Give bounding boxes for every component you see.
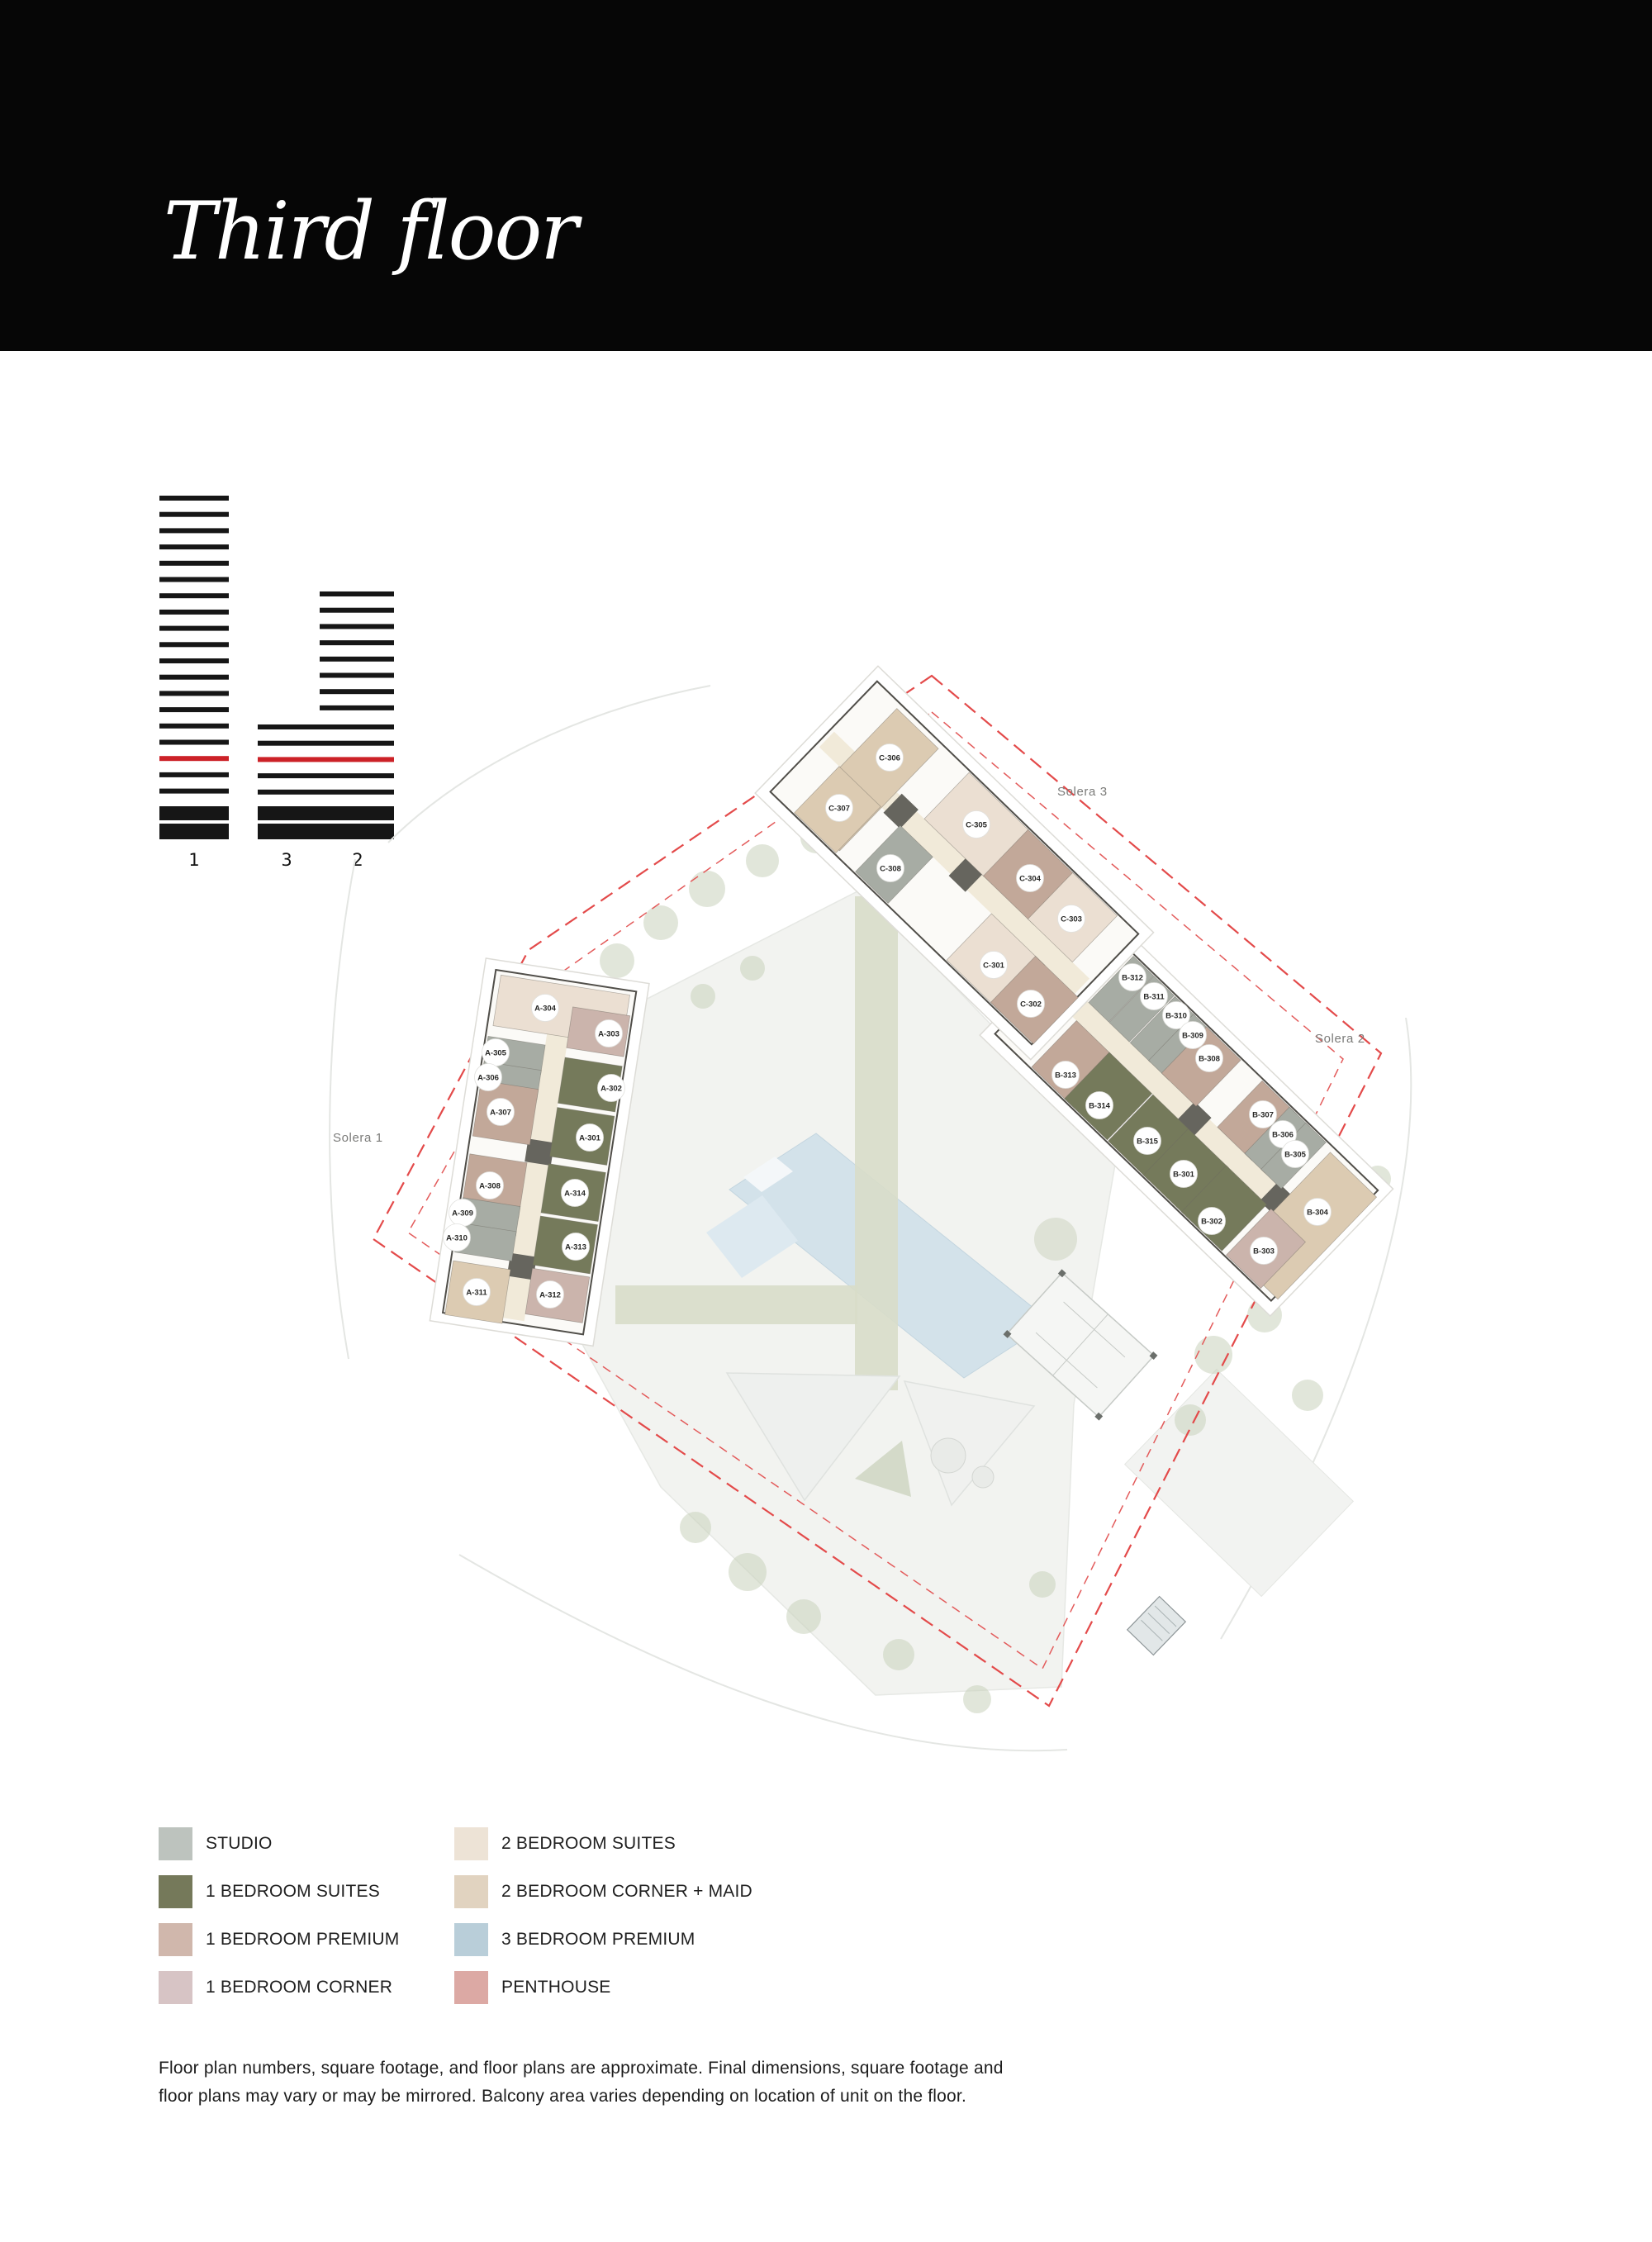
floor-line bbox=[320, 624, 394, 629]
floor-line bbox=[320, 705, 394, 710]
legend-label: STUDIO bbox=[206, 1834, 273, 1854]
floor-line bbox=[320, 657, 394, 662]
legend-label: 3 BEDROOM PREMIUM bbox=[501, 1930, 695, 1950]
floor-line bbox=[258, 773, 394, 778]
floor-line bbox=[320, 608, 394, 613]
building-name-label: Solera 2 bbox=[1315, 1032, 1365, 1046]
unit-number-label: A-314 bbox=[564, 1189, 586, 1198]
floor-line bbox=[320, 591, 394, 596]
unit-number-label: C-302 bbox=[1020, 1000, 1042, 1009]
legend-label: 2 BEDROOM CORNER + MAID bbox=[501, 1882, 752, 1902]
unit-number-label: B-302 bbox=[1201, 1217, 1222, 1226]
unit-number-label: B-306 bbox=[1272, 1130, 1294, 1139]
floor-line bbox=[159, 577, 229, 582]
unit-number-label: B-304 bbox=[1307, 1208, 1329, 1217]
floor-line bbox=[159, 707, 229, 712]
context-road-line bbox=[330, 859, 355, 1359]
landscape-feature bbox=[972, 1466, 994, 1488]
legend-label: 2 BEDROOM SUITES bbox=[501, 1834, 676, 1854]
unit-number-label: C-301 bbox=[983, 961, 1005, 970]
floor-line bbox=[320, 640, 394, 645]
brochure-page: Third floor 132A-304A-303A-305A-306A-302… bbox=[0, 0, 1652, 2242]
unit-number-label: A-313 bbox=[565, 1242, 586, 1252]
unit-number-label: B-315 bbox=[1137, 1137, 1159, 1146]
unit-number-label: C-307 bbox=[828, 804, 850, 813]
legend-swatch bbox=[454, 1875, 488, 1908]
unit-number-label: C-306 bbox=[879, 753, 900, 762]
disclaimer-line-2: floor plans may vary or may be mirrored.… bbox=[159, 2087, 966, 2106]
landscape-feature bbox=[746, 844, 779, 877]
floor-line bbox=[258, 790, 394, 795]
legend-swatch bbox=[454, 1827, 488, 1860]
landscape-feature bbox=[643, 905, 678, 940]
unit-number-label: A-303 bbox=[598, 1029, 619, 1038]
site-plan: A-304A-303A-305A-306A-302A-307A-301A-308… bbox=[330, 666, 1411, 1750]
podium-block bbox=[159, 806, 229, 820]
floor-line bbox=[258, 741, 394, 746]
third-floor-marker-line bbox=[159, 756, 229, 761]
floor-line bbox=[159, 642, 229, 647]
floor-line bbox=[159, 772, 229, 777]
legend-label: PENTHOUSE bbox=[501, 1978, 611, 1997]
unit-number-label: C-303 bbox=[1061, 914, 1082, 924]
unit-number-label: B-301 bbox=[1173, 1170, 1195, 1179]
tower-number-label: 3 bbox=[281, 850, 292, 870]
unit-number-label: B-309 bbox=[1182, 1031, 1203, 1040]
disclaimer-line-1: Floor plan numbers, square footage, and … bbox=[159, 2059, 1004, 2078]
unit-number-label: B-305 bbox=[1284, 1150, 1307, 1159]
floor-line bbox=[258, 724, 394, 729]
legend-label: 1 BEDROOM PREMIUM bbox=[206, 1930, 399, 1950]
landscape-feature bbox=[1034, 1218, 1077, 1261]
legend-item: 1 BEDROOM PREMIUM bbox=[159, 1916, 454, 1964]
unit-number-label: A-306 bbox=[477, 1073, 499, 1082]
legend-swatch bbox=[454, 1923, 488, 1956]
unit-number-label: C-304 bbox=[1019, 874, 1042, 883]
floor-line bbox=[159, 724, 229, 729]
unit-number-label: B-307 bbox=[1252, 1110, 1274, 1119]
legend-item: 2 BEDROOM CORNER + MAID bbox=[454, 1868, 752, 1916]
floor-line bbox=[159, 528, 229, 533]
unit-number-label: B-310 bbox=[1165, 1011, 1187, 1020]
landscape-feature bbox=[931, 1438, 966, 1473]
unit-number-label: B-303 bbox=[1253, 1247, 1275, 1256]
unit-number-label: C-305 bbox=[966, 820, 988, 829]
unit-number-label: A-311 bbox=[466, 1288, 487, 1297]
unit-number-label: A-310 bbox=[446, 1233, 468, 1242]
unit-number-label: A-309 bbox=[452, 1209, 473, 1218]
landscape-feature bbox=[883, 1639, 914, 1670]
legend-item: 3 BEDROOM PREMIUM bbox=[454, 1916, 752, 1964]
floor-line bbox=[159, 593, 229, 598]
landscape-feature bbox=[615, 1285, 857, 1324]
floor-line bbox=[159, 626, 229, 631]
third-floor-marker-line bbox=[258, 757, 394, 762]
floor-line bbox=[320, 673, 394, 678]
podium-block bbox=[258, 824, 394, 839]
landscape-feature bbox=[963, 1685, 991, 1713]
legend-swatch bbox=[159, 1971, 192, 2004]
floor-line bbox=[159, 789, 229, 794]
landscape-feature bbox=[1127, 1597, 1186, 1655]
floor-line bbox=[159, 512, 229, 517]
unit-number-label: A-305 bbox=[485, 1048, 507, 1057]
legend-item: 1 BEDROOM SUITES bbox=[159, 1868, 454, 1916]
disclaimer: Floor plan numbers, square footage, and … bbox=[159, 2054, 1004, 2111]
legend-label: 1 BEDROOM SUITES bbox=[206, 1882, 380, 1902]
unit-number-label: A-304 bbox=[534, 1004, 557, 1013]
legend-swatch bbox=[159, 1923, 192, 1956]
floor-line bbox=[159, 544, 229, 549]
context-road-line bbox=[388, 686, 710, 843]
unit-number-label: B-311 bbox=[1143, 992, 1165, 1001]
floor-line bbox=[159, 561, 229, 566]
legend-swatch bbox=[159, 1827, 192, 1860]
legend-column: STUDIO1 BEDROOM SUITES1 BEDROOM PREMIUM1… bbox=[159, 1820, 454, 2012]
floor-line bbox=[159, 496, 229, 501]
podium-block bbox=[159, 824, 229, 839]
unit-number-label: A-307 bbox=[490, 1108, 511, 1117]
unit-number-label: A-308 bbox=[479, 1181, 501, 1190]
floor-line bbox=[159, 610, 229, 615]
floor-line bbox=[159, 740, 229, 745]
landscape-feature bbox=[1292, 1380, 1323, 1411]
legend-swatch bbox=[159, 1875, 192, 1908]
legend-label: 1 BEDROOM CORNER bbox=[206, 1978, 392, 1997]
legend-item: STUDIO bbox=[159, 1820, 454, 1868]
legend: STUDIO1 BEDROOM SUITES1 BEDROOM PREMIUM1… bbox=[159, 1820, 752, 2012]
unit-number-label: B-308 bbox=[1199, 1054, 1220, 1063]
landscape-feature bbox=[691, 984, 715, 1009]
landscape-feature bbox=[1175, 1404, 1206, 1436]
landscape-feature bbox=[740, 956, 765, 981]
unit-number-label: B-313 bbox=[1055, 1071, 1076, 1080]
unit-number-label: A-302 bbox=[601, 1084, 622, 1093]
unit-number-label: B-314 bbox=[1089, 1101, 1111, 1110]
podium-block bbox=[258, 806, 394, 820]
landscape-feature bbox=[1029, 1571, 1056, 1598]
legend-item: 2 BEDROOM SUITES bbox=[454, 1820, 752, 1868]
tower-number-label: 1 bbox=[188, 850, 199, 870]
legend-item: 1 BEDROOM CORNER bbox=[159, 1964, 454, 2012]
unit-number-label: A-312 bbox=[539, 1290, 561, 1299]
unit-number-label: B-312 bbox=[1122, 973, 1143, 982]
building-elevation-diagram: 132 bbox=[159, 496, 394, 870]
landscape-feature bbox=[786, 1599, 821, 1634]
floor-line bbox=[159, 691, 229, 696]
landscape-feature bbox=[689, 871, 725, 907]
unit-number-label: A-301 bbox=[579, 1133, 601, 1142]
legend-column: 2 BEDROOM SUITES2 BEDROOM CORNER + MAID3… bbox=[454, 1820, 752, 2012]
floor-line bbox=[159, 658, 229, 663]
legend-swatch bbox=[454, 1971, 488, 2004]
landscape-feature bbox=[600, 943, 634, 978]
building-name-label: Solera 1 bbox=[333, 1131, 383, 1145]
landscape-feature bbox=[855, 896, 898, 1390]
building-name-label: Solera 3 bbox=[1057, 785, 1108, 799]
legend-item: PENTHOUSE bbox=[454, 1964, 752, 2012]
floor-line bbox=[320, 689, 394, 694]
landscape-feature bbox=[729, 1553, 767, 1591]
landscape-feature bbox=[680, 1512, 711, 1543]
unit-number-label: C-308 bbox=[880, 864, 901, 873]
floor-line bbox=[159, 675, 229, 680]
